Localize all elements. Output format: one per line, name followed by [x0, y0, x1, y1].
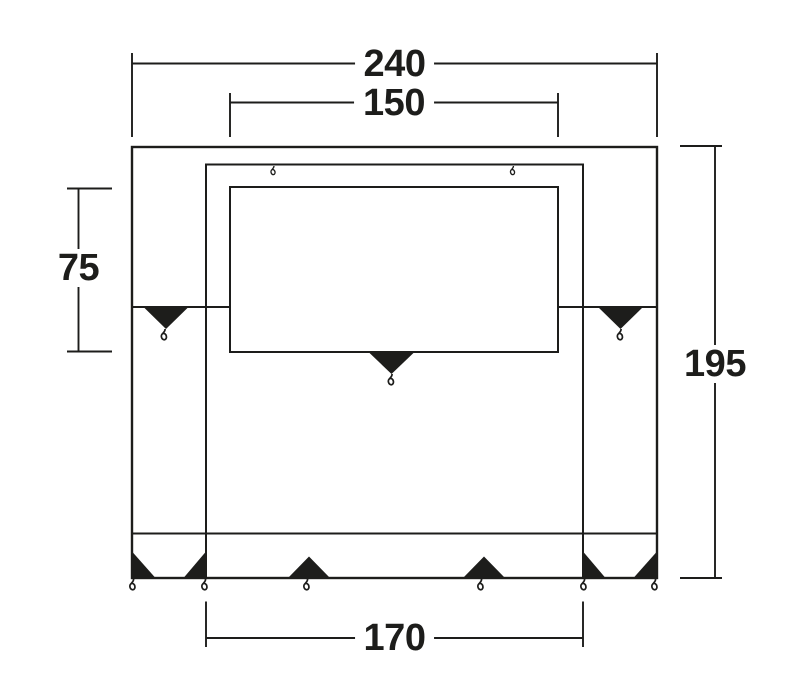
hook-icon	[617, 329, 623, 340]
peg-marker-rear-mid-left	[288, 557, 330, 579]
peg-marker-rear-right	[583, 552, 606, 579]
hook-icon	[477, 579, 483, 590]
dimension-label-front-window-width: 150	[354, 84, 434, 122]
hook-icon	[129, 579, 135, 590]
hook-icon	[510, 166, 515, 175]
peg-marker-right	[598, 307, 643, 329]
peg-marker-rear-mid-right	[463, 557, 505, 579]
dimension-label-rear-width: 170	[355, 619, 435, 657]
hook-icon	[201, 579, 207, 590]
peg-marker-rear-corner-left	[132, 552, 156, 579]
peg-marker-rear-corner-right	[634, 552, 658, 579]
inner-cabin-outline	[230, 187, 558, 352]
peg-marker-left	[144, 307, 189, 329]
peg-marker-cabin-front	[369, 352, 415, 374]
hook-icon	[303, 579, 309, 590]
dimension-label-total-width: 240	[355, 45, 435, 83]
hook-icon	[161, 329, 167, 340]
hook-icon	[580, 579, 586, 590]
dimension-label-cabin-depth: 75	[49, 249, 108, 287]
peg-marker-rear-left	[184, 552, 207, 579]
hook-icons	[129, 166, 657, 590]
awning-footprint-diagram: 240 150 75 195 170	[0, 0, 791, 700]
hook-icon	[270, 166, 275, 175]
hook-icon	[388, 374, 394, 385]
dimension-label-total-depth: 195	[675, 345, 755, 383]
hook-icon	[651, 579, 657, 590]
inner-zone-outline	[206, 165, 583, 579]
